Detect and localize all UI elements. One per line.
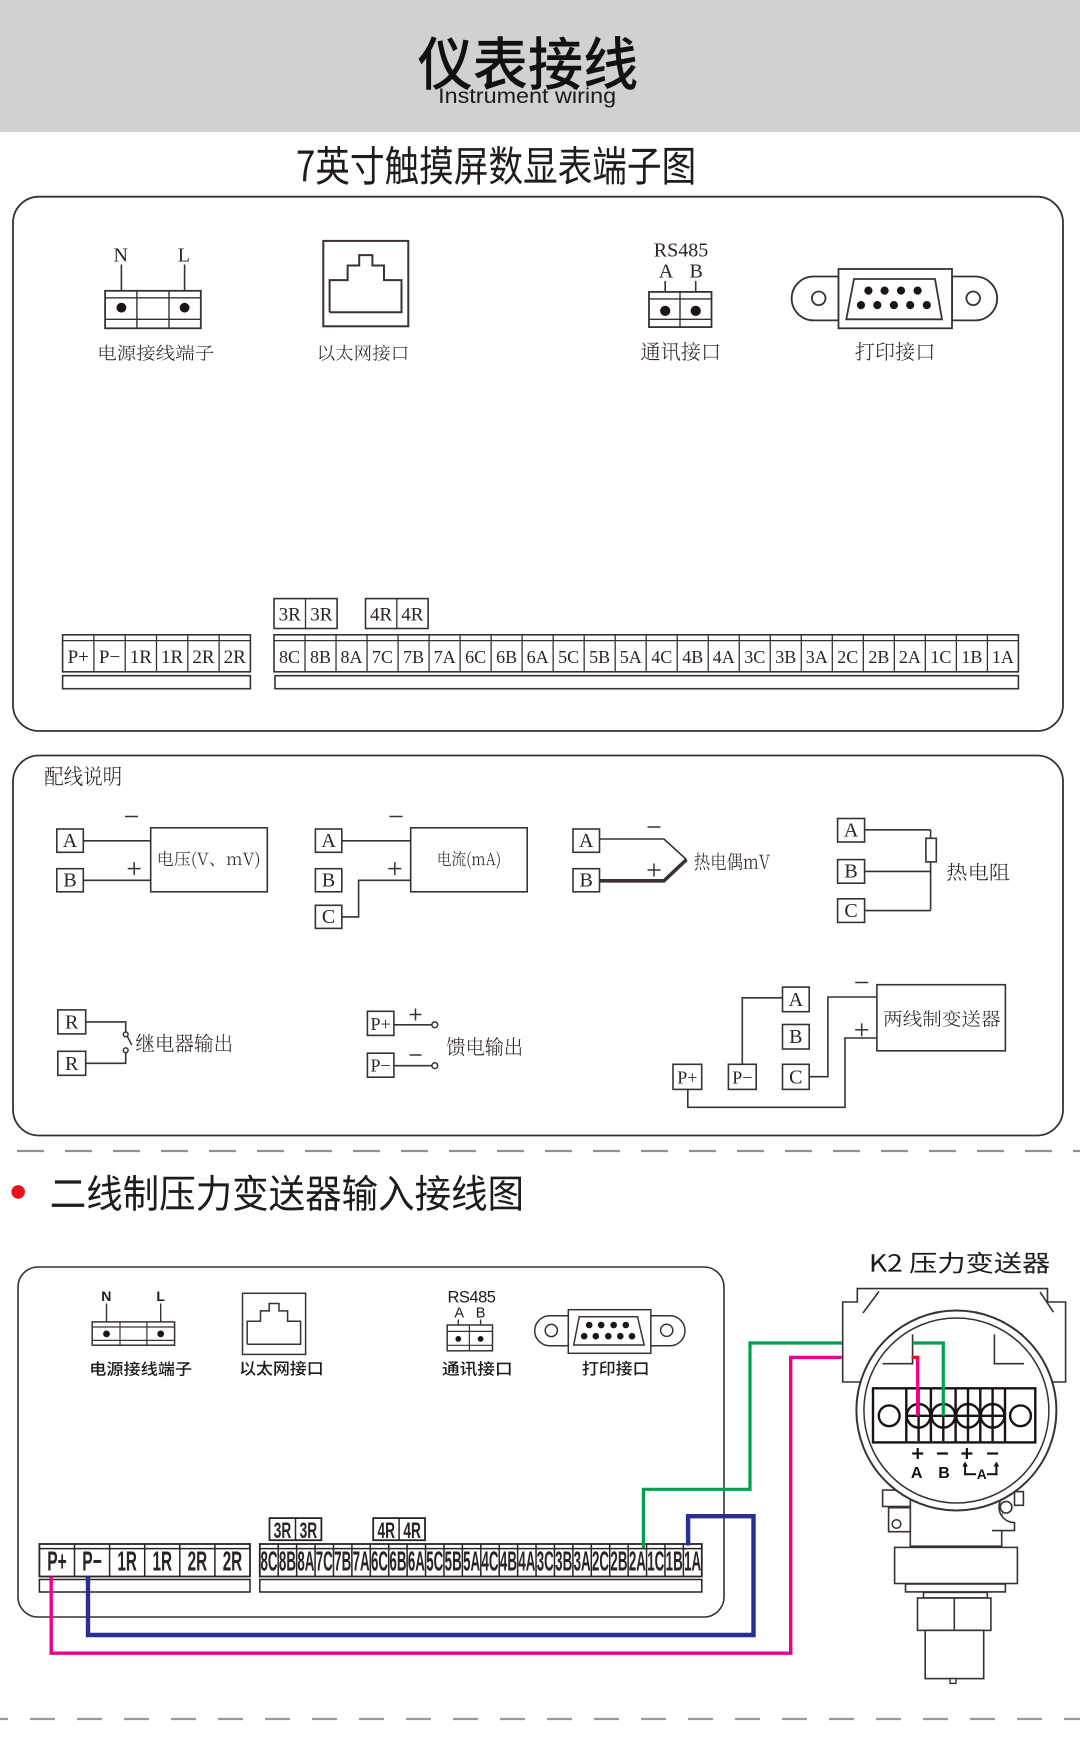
svg-text:1C: 1C [647, 1545, 664, 1577]
svg-text:3A: 3A [574, 1545, 591, 1577]
svg-text:L: L [156, 1288, 165, 1304]
svg-text:B: B [63, 869, 76, 891]
svg-text:A: A [579, 830, 594, 852]
svg-text:P+: P+ [677, 1067, 697, 1087]
svg-text:3C: 3C [744, 647, 765, 667]
svg-text:A: A [911, 1465, 923, 1482]
svg-text:1R: 1R [153, 1546, 172, 1577]
svg-text:1A: 1A [684, 1545, 701, 1577]
svg-text:A: A [844, 819, 859, 841]
svg-text:1R: 1R [161, 647, 184, 668]
svg-text:4A: 4A [713, 647, 735, 667]
svg-text:4C: 4C [482, 1545, 499, 1577]
svg-text:3B: 3B [775, 647, 796, 667]
svg-text:7A: 7A [434, 647, 456, 667]
svg-text:B: B [690, 261, 703, 283]
svg-text:B: B [476, 1306, 486, 1322]
svg-text:7C: 7C [372, 647, 393, 667]
svg-text:8A: 8A [297, 1545, 314, 1577]
svg-text:1A: 1A [992, 647, 1014, 667]
svg-text:3R: 3R [274, 1517, 292, 1542]
svg-text:4B: 4B [500, 1545, 517, 1577]
svg-text:6B: 6B [496, 647, 517, 667]
svg-text:3R: 3R [300, 1517, 318, 1542]
svg-text:4R: 4R [403, 1517, 421, 1542]
svg-text:5C: 5C [426, 1545, 443, 1577]
svg-text:1B: 1B [666, 1545, 683, 1577]
svg-text:B: B [322, 869, 335, 891]
svg-text:P+: P+ [47, 1546, 66, 1577]
svg-text:RS485: RS485 [654, 239, 708, 261]
svg-text:2B: 2B [610, 1545, 627, 1577]
svg-text:7B: 7B [403, 647, 424, 667]
svg-text:8A: 8A [341, 647, 363, 667]
svg-text:A: A [321, 830, 336, 852]
svg-text:5A: 5A [620, 647, 642, 667]
svg-text:Instrument wiring: Instrument wiring [438, 84, 616, 108]
svg-text:3B: 3B [555, 1545, 572, 1577]
svg-text:1R: 1R [117, 1546, 136, 1577]
svg-text:B: B [789, 1026, 802, 1048]
svg-text:A: A [789, 989, 804, 1011]
svg-text:2R: 2R [192, 647, 215, 668]
svg-text:B: B [938, 1465, 950, 1482]
svg-text:6B: 6B [389, 1545, 406, 1577]
svg-text:A: A [977, 1467, 987, 1482]
svg-text:3C: 3C [537, 1545, 554, 1577]
svg-text:L: L [178, 244, 190, 266]
svg-text:3R: 3R [279, 604, 302, 625]
svg-text:5B: 5B [445, 1545, 462, 1577]
svg-text:3A: 3A [806, 647, 828, 667]
svg-text:2R: 2R [223, 1546, 242, 1577]
svg-text:P−: P− [82, 1546, 101, 1577]
svg-text:8C: 8C [261, 1545, 278, 1577]
svg-text:P−: P− [732, 1067, 752, 1087]
svg-text:4B: 4B [682, 647, 703, 667]
svg-text:5B: 5B [589, 647, 610, 667]
svg-text:4R: 4R [370, 604, 393, 625]
svg-text:2B: 2B [868, 647, 889, 667]
svg-text:3R: 3R [310, 604, 333, 625]
svg-text:2R: 2R [188, 1546, 207, 1577]
svg-text:6A: 6A [408, 1545, 425, 1577]
svg-text:C: C [322, 906, 335, 928]
svg-text:P+: P+ [68, 647, 89, 668]
svg-text:4R: 4R [401, 604, 424, 625]
svg-text:P−: P− [371, 1056, 391, 1076]
svg-text:7A: 7A [353, 1545, 370, 1577]
svg-text:2A: 2A [629, 1545, 646, 1577]
svg-text:R: R [65, 1011, 79, 1033]
svg-text:5A: 5A [463, 1545, 480, 1577]
svg-text:8B: 8B [279, 1545, 296, 1577]
svg-text:5C: 5C [558, 647, 579, 667]
svg-text:8C: 8C [279, 647, 300, 667]
svg-text:1R: 1R [130, 647, 153, 668]
svg-text:C: C [844, 900, 857, 922]
svg-text:4R: 4R [377, 1517, 395, 1542]
svg-text:8B: 8B [310, 647, 331, 667]
svg-text:A: A [659, 261, 674, 283]
svg-text:2R: 2R [224, 647, 247, 668]
svg-text:R: R [65, 1053, 79, 1075]
svg-text:N: N [113, 244, 127, 266]
svg-text:6C: 6C [371, 1545, 388, 1577]
svg-text:A: A [63, 830, 78, 852]
svg-text:2C: 2C [837, 647, 858, 667]
svg-text:B: B [844, 861, 857, 883]
svg-text:N: N [101, 1288, 111, 1304]
svg-text:RS485: RS485 [448, 1289, 496, 1307]
svg-text:6A: 6A [527, 647, 549, 667]
svg-text:7B: 7B [334, 1545, 351, 1577]
svg-text:7C: 7C [316, 1545, 333, 1577]
svg-text:2C: 2C [592, 1545, 609, 1577]
svg-text:P−: P− [99, 647, 120, 668]
svg-text:P+: P+ [371, 1014, 391, 1034]
svg-text:6C: 6C [465, 647, 486, 667]
svg-text:1B: 1B [961, 647, 982, 667]
svg-text:4C: 4C [651, 647, 672, 667]
svg-text:1C: 1C [930, 647, 951, 667]
svg-text:2A: 2A [899, 647, 921, 667]
svg-text:C: C [789, 1066, 802, 1088]
svg-text:B: B [580, 869, 593, 891]
svg-text:4A: 4A [518, 1545, 535, 1577]
svg-text:A: A [454, 1306, 464, 1322]
